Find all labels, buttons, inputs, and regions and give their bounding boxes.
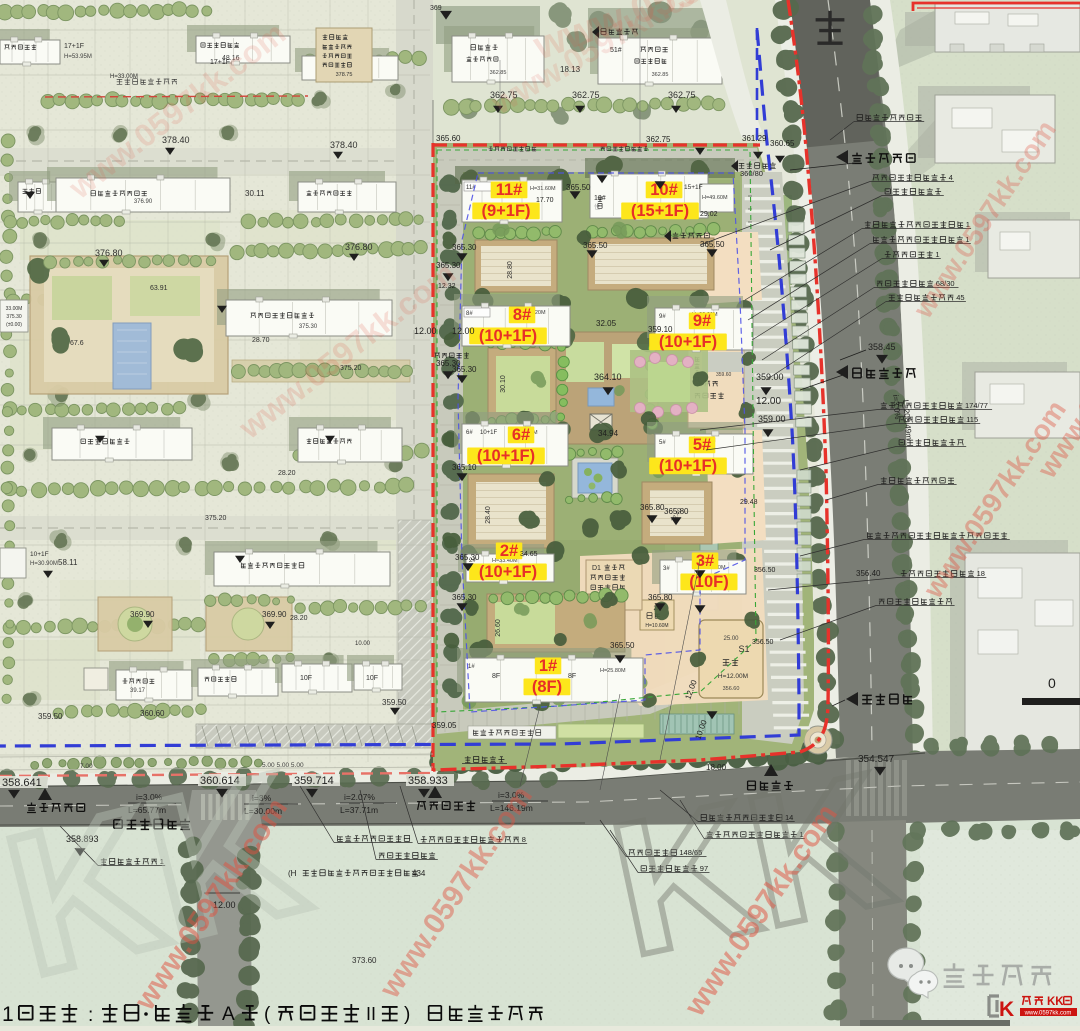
svg-text:): ) bbox=[404, 1004, 410, 1025]
svg-text:K: K bbox=[999, 998, 1014, 1021]
svg-text:II: II bbox=[366, 1004, 376, 1024]
svg-text:www.0597kk.com: www.0597kk.com bbox=[1024, 1011, 1072, 1017]
svg-text::: : bbox=[88, 1005, 93, 1026]
svg-text:A: A bbox=[222, 1004, 235, 1025]
svg-text:KK: KK bbox=[1047, 996, 1064, 1008]
svg-text:(: ( bbox=[264, 1004, 271, 1025]
svg-text:1: 1 bbox=[2, 1003, 14, 1026]
